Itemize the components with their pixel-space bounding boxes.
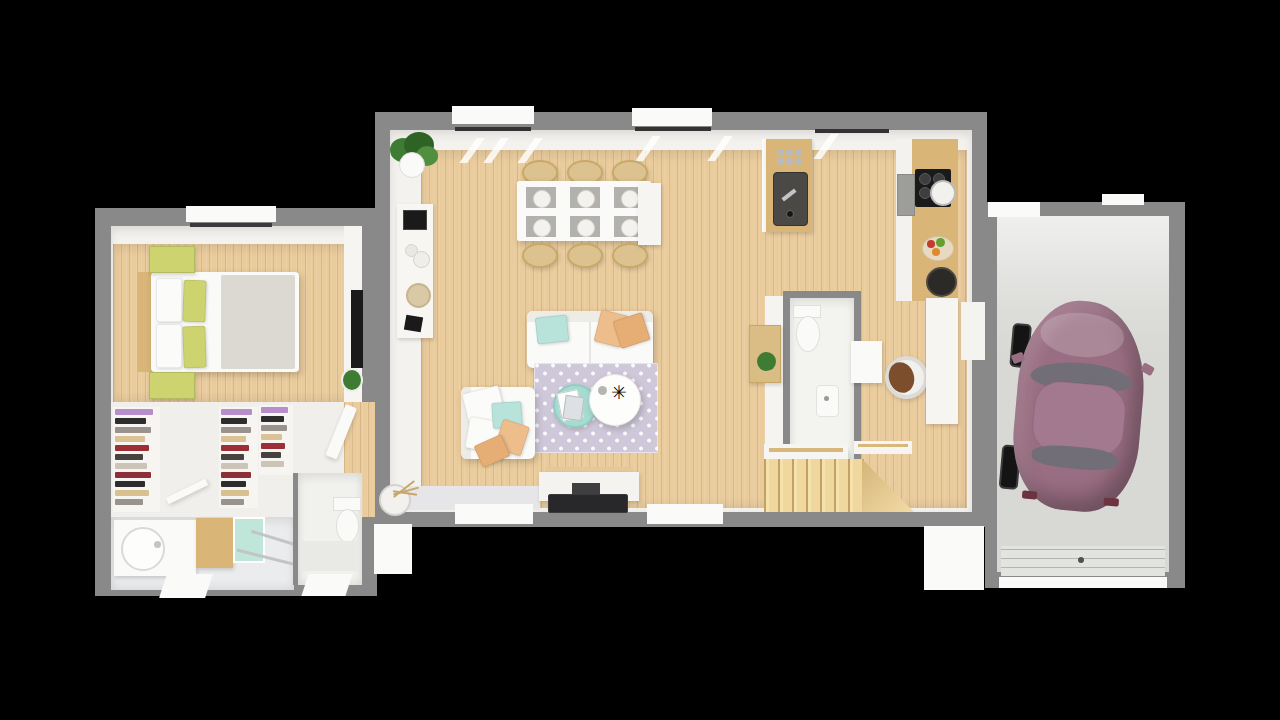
stair-rail-cap <box>858 444 908 447</box>
folded-clothes <box>115 409 153 415</box>
folded-clothes <box>261 416 284 422</box>
shelf-vase <box>413 251 430 268</box>
toilet-bowl <box>336 509 359 543</box>
starburst-decor-icon <box>611 383 631 403</box>
garage-car <box>995 293 1165 521</box>
folded-clothes <box>221 436 246 442</box>
table-decor <box>598 386 607 395</box>
folded-clothes <box>115 463 147 469</box>
bed-pillow <box>156 278 182 322</box>
sofa-seam <box>589 322 591 366</box>
crate-plant <box>757 352 776 371</box>
folded-clothes <box>221 490 249 496</box>
wall-basin <box>816 385 839 417</box>
plate <box>621 190 639 208</box>
shelf-decor <box>404 315 423 333</box>
window-sill <box>632 108 712 126</box>
bed-pillow <box>156 324 182 368</box>
left-wing-window <box>301 574 352 596</box>
garage-door-handle <box>1078 557 1084 563</box>
sofa-pillow-mint <box>535 314 570 344</box>
window-glass <box>815 129 889 133</box>
plate <box>533 219 551 237</box>
glassware <box>786 149 793 156</box>
plate <box>577 219 595 237</box>
folded-clothes <box>115 445 149 451</box>
window-sill <box>452 106 534 124</box>
magazine <box>562 395 584 421</box>
bathroom-cabinet <box>196 518 233 568</box>
porch <box>374 524 412 574</box>
folded-clothes <box>221 454 244 460</box>
folded-clothes <box>261 407 288 413</box>
folded-clothes <box>261 434 282 440</box>
faucet <box>154 541 161 548</box>
window-glass <box>455 127 531 131</box>
glassware <box>795 149 802 156</box>
garage-doorway <box>961 302 987 360</box>
folded-clothes <box>115 427 151 433</box>
plate <box>577 190 595 208</box>
living-tv <box>548 494 628 513</box>
burner <box>919 173 931 185</box>
shelf-basket <box>406 283 431 308</box>
bed-headboard <box>137 272 152 372</box>
window-sill <box>647 504 723 524</box>
dark-pot <box>926 267 957 297</box>
entry-table <box>851 341 882 383</box>
folded-clothes <box>221 463 248 469</box>
wardrobe-rack <box>113 407 160 512</box>
picture-frame <box>403 210 427 230</box>
window-sill <box>455 504 533 524</box>
built-in-oven <box>897 174 915 216</box>
folded-clothes <box>221 472 251 478</box>
dining-chair <box>522 243 558 268</box>
bedroom-tv <box>351 290 363 368</box>
folded-clothes <box>261 443 285 449</box>
fruit <box>936 238 945 247</box>
garage-window-sill <box>1102 194 1144 205</box>
fruit <box>927 240 935 248</box>
toilet-bowl <box>796 316 820 352</box>
bedroom-window-sill <box>186 206 276 222</box>
bedroom-window-glass <box>190 223 272 227</box>
garage-side-door <box>988 202 1040 217</box>
entry-sideboard <box>926 298 958 424</box>
folded-clothes <box>115 481 145 487</box>
folded-clothes <box>221 481 246 487</box>
washbasin <box>121 527 165 571</box>
wardrobe-rack <box>259 405 293 475</box>
glassware <box>795 158 802 165</box>
folded-clothes <box>221 445 249 451</box>
dining-chair <box>612 243 648 268</box>
plant-pot <box>399 152 425 178</box>
folded-clothes <box>115 490 149 496</box>
folded-clothes <box>115 472 151 478</box>
folded-clothes <box>221 427 251 433</box>
folded-clothes <box>221 409 252 415</box>
window-glass <box>635 127 711 131</box>
cooking-pot <box>930 180 956 206</box>
folded-clothes <box>115 436 145 442</box>
glassware <box>777 158 784 165</box>
nightstand <box>149 372 195 399</box>
dining-chair <box>567 243 603 268</box>
folded-clothes <box>115 454 143 460</box>
plate <box>621 219 639 237</box>
car-taillight <box>1022 490 1038 499</box>
stair-rail <box>854 441 912 454</box>
bed-pillow-green <box>182 280 206 323</box>
bedroom-plant <box>341 368 363 392</box>
sideboard <box>638 183 661 245</box>
folded-clothes <box>261 461 284 467</box>
folded-clothes <box>221 499 244 505</box>
wc-bench <box>300 541 358 571</box>
staircase <box>764 459 864 512</box>
wardrobe-rack <box>219 407 258 508</box>
glassware <box>777 149 784 156</box>
folded-clothes <box>221 418 247 424</box>
floor-plan-scene <box>0 0 1280 720</box>
stair-rail-cap <box>769 448 843 452</box>
porch <box>924 526 984 590</box>
garage-threshold <box>999 577 1167 588</box>
folded-clothes <box>115 499 143 505</box>
basin-drain <box>824 396 829 401</box>
folded-clothes <box>115 418 146 424</box>
left-wing-window <box>159 574 213 598</box>
glassware <box>786 158 793 165</box>
plate <box>533 190 551 208</box>
folded-clothes <box>261 452 281 458</box>
bed-pillow-green <box>182 326 206 369</box>
fruit <box>932 248 940 256</box>
sink-drain <box>786 210 794 218</box>
nightstand <box>149 246 195 273</box>
folded-clothes <box>261 425 287 431</box>
car-taillight <box>1104 497 1120 506</box>
bed-blanket <box>221 275 295 369</box>
